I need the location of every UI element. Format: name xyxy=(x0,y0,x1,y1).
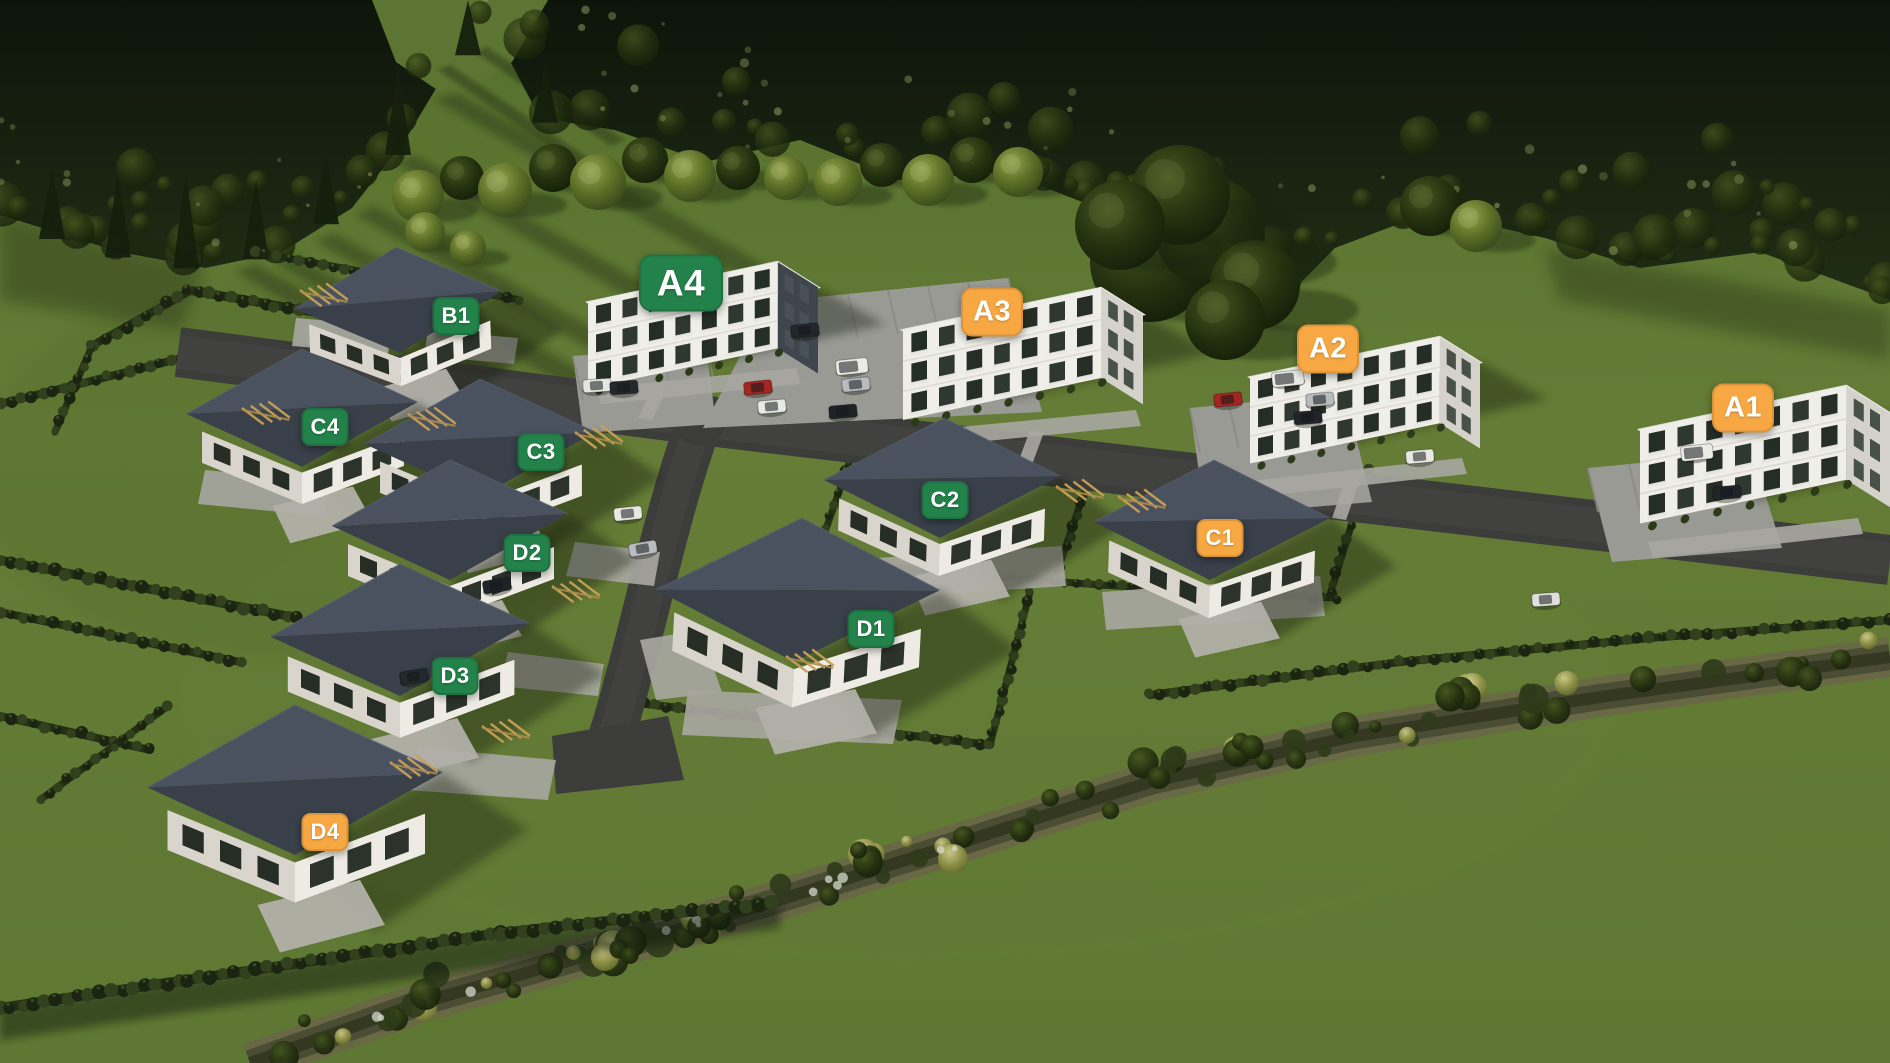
building-label-d2[interactable]: D2 xyxy=(504,534,551,572)
building-label-b1[interactable]: B1 xyxy=(433,297,480,335)
building-label-a3[interactable]: A3 xyxy=(961,288,1023,337)
site-plan-3d-view: A4 A3 A2 A1 B1 C4 C3 C2 C1 D2 D3 D1 D4 xyxy=(0,0,1890,1063)
building-label-d4[interactable]: D4 xyxy=(302,813,349,851)
building-label-a1[interactable]: A1 xyxy=(1712,384,1774,433)
building-label-d1[interactable]: D1 xyxy=(848,610,895,648)
estate-render-canvas xyxy=(0,0,1890,1063)
building-label-c1[interactable]: C1 xyxy=(1197,519,1244,557)
building-label-a4[interactable]: A4 xyxy=(639,255,723,312)
building-label-c4[interactable]: C4 xyxy=(302,408,349,446)
building-label-c2[interactable]: C2 xyxy=(922,481,969,519)
building-label-c3[interactable]: C3 xyxy=(518,433,565,471)
building-label-d3[interactable]: D3 xyxy=(432,657,479,695)
building-label-a2[interactable]: A2 xyxy=(1297,325,1359,374)
